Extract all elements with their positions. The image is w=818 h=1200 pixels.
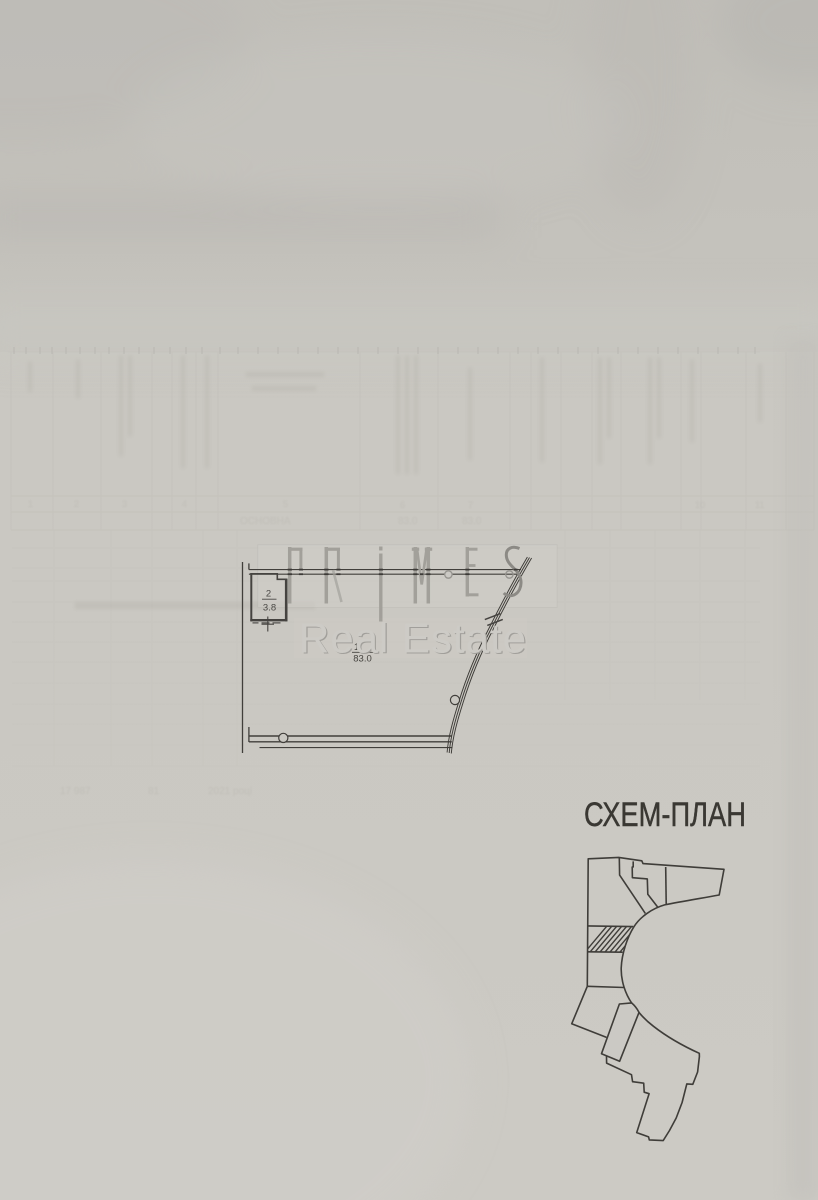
svg-text:3.8: 3.8 [263, 603, 276, 614]
svg-text:СХЕМ-ПЛАН: СХЕМ-ПЛАН [584, 796, 746, 834]
svg-text:83.0: 83.0 [462, 516, 482, 527]
svg-text:2021 році: 2021 році [208, 786, 252, 797]
svg-text:6: 6 [400, 500, 405, 510]
svg-text:10: 10 [695, 500, 705, 510]
svg-text:2: 2 [74, 499, 79, 509]
svg-text:2: 2 [266, 589, 271, 600]
svg-text:3: 3 [122, 499, 127, 509]
svg-text:4: 4 [182, 499, 187, 509]
svg-text:11: 11 [755, 500, 764, 510]
svg-text:ОСНОВНА: ОСНОВНА [240, 516, 291, 527]
svg-text:5: 5 [283, 499, 288, 509]
svg-text:81: 81 [148, 786, 160, 797]
svg-text:17 987: 17 987 [60, 786, 91, 797]
svg-text:7: 7 [468, 500, 473, 510]
svg-text:1: 1 [28, 499, 33, 509]
svg-text:83.0: 83.0 [398, 516, 418, 527]
svg-text:Real Estate: Real Estate [299, 615, 527, 662]
